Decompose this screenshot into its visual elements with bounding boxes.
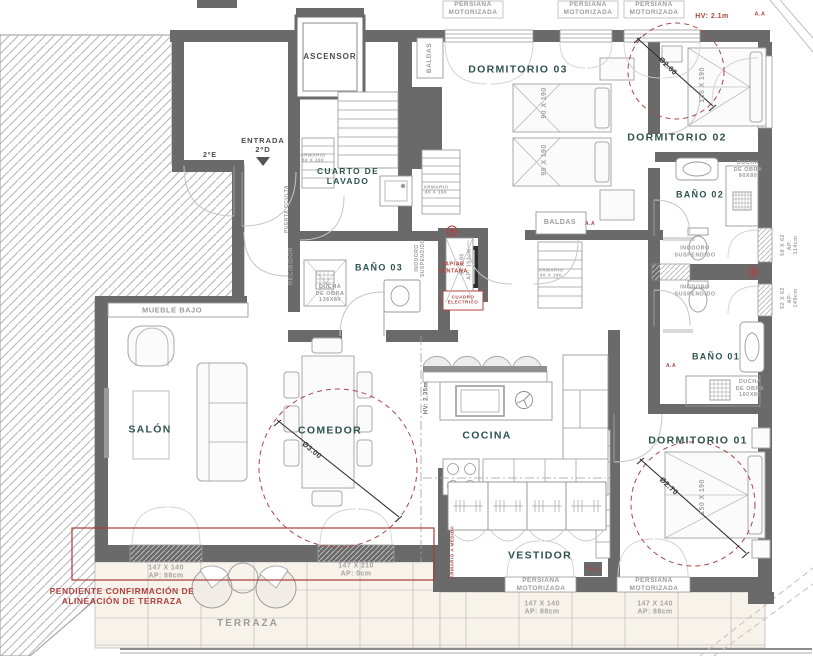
wardrobes (448, 482, 606, 541)
dining-furniture (284, 338, 372, 506)
entry-arrow-icon (256, 157, 270, 166)
salon-furniture (104, 326, 247, 481)
floorplan-page: SALÓNCOMEDORCOCINAVESTIDORDORMITORIO 01D… (0, 0, 813, 656)
floorplan-drawing (0, 0, 813, 656)
bathroom-divider-hatch (652, 264, 690, 280)
elevator-shaft (296, 16, 364, 98)
persiana-boxes (443, 1, 684, 18)
kitchen-fixtures (423, 355, 608, 495)
